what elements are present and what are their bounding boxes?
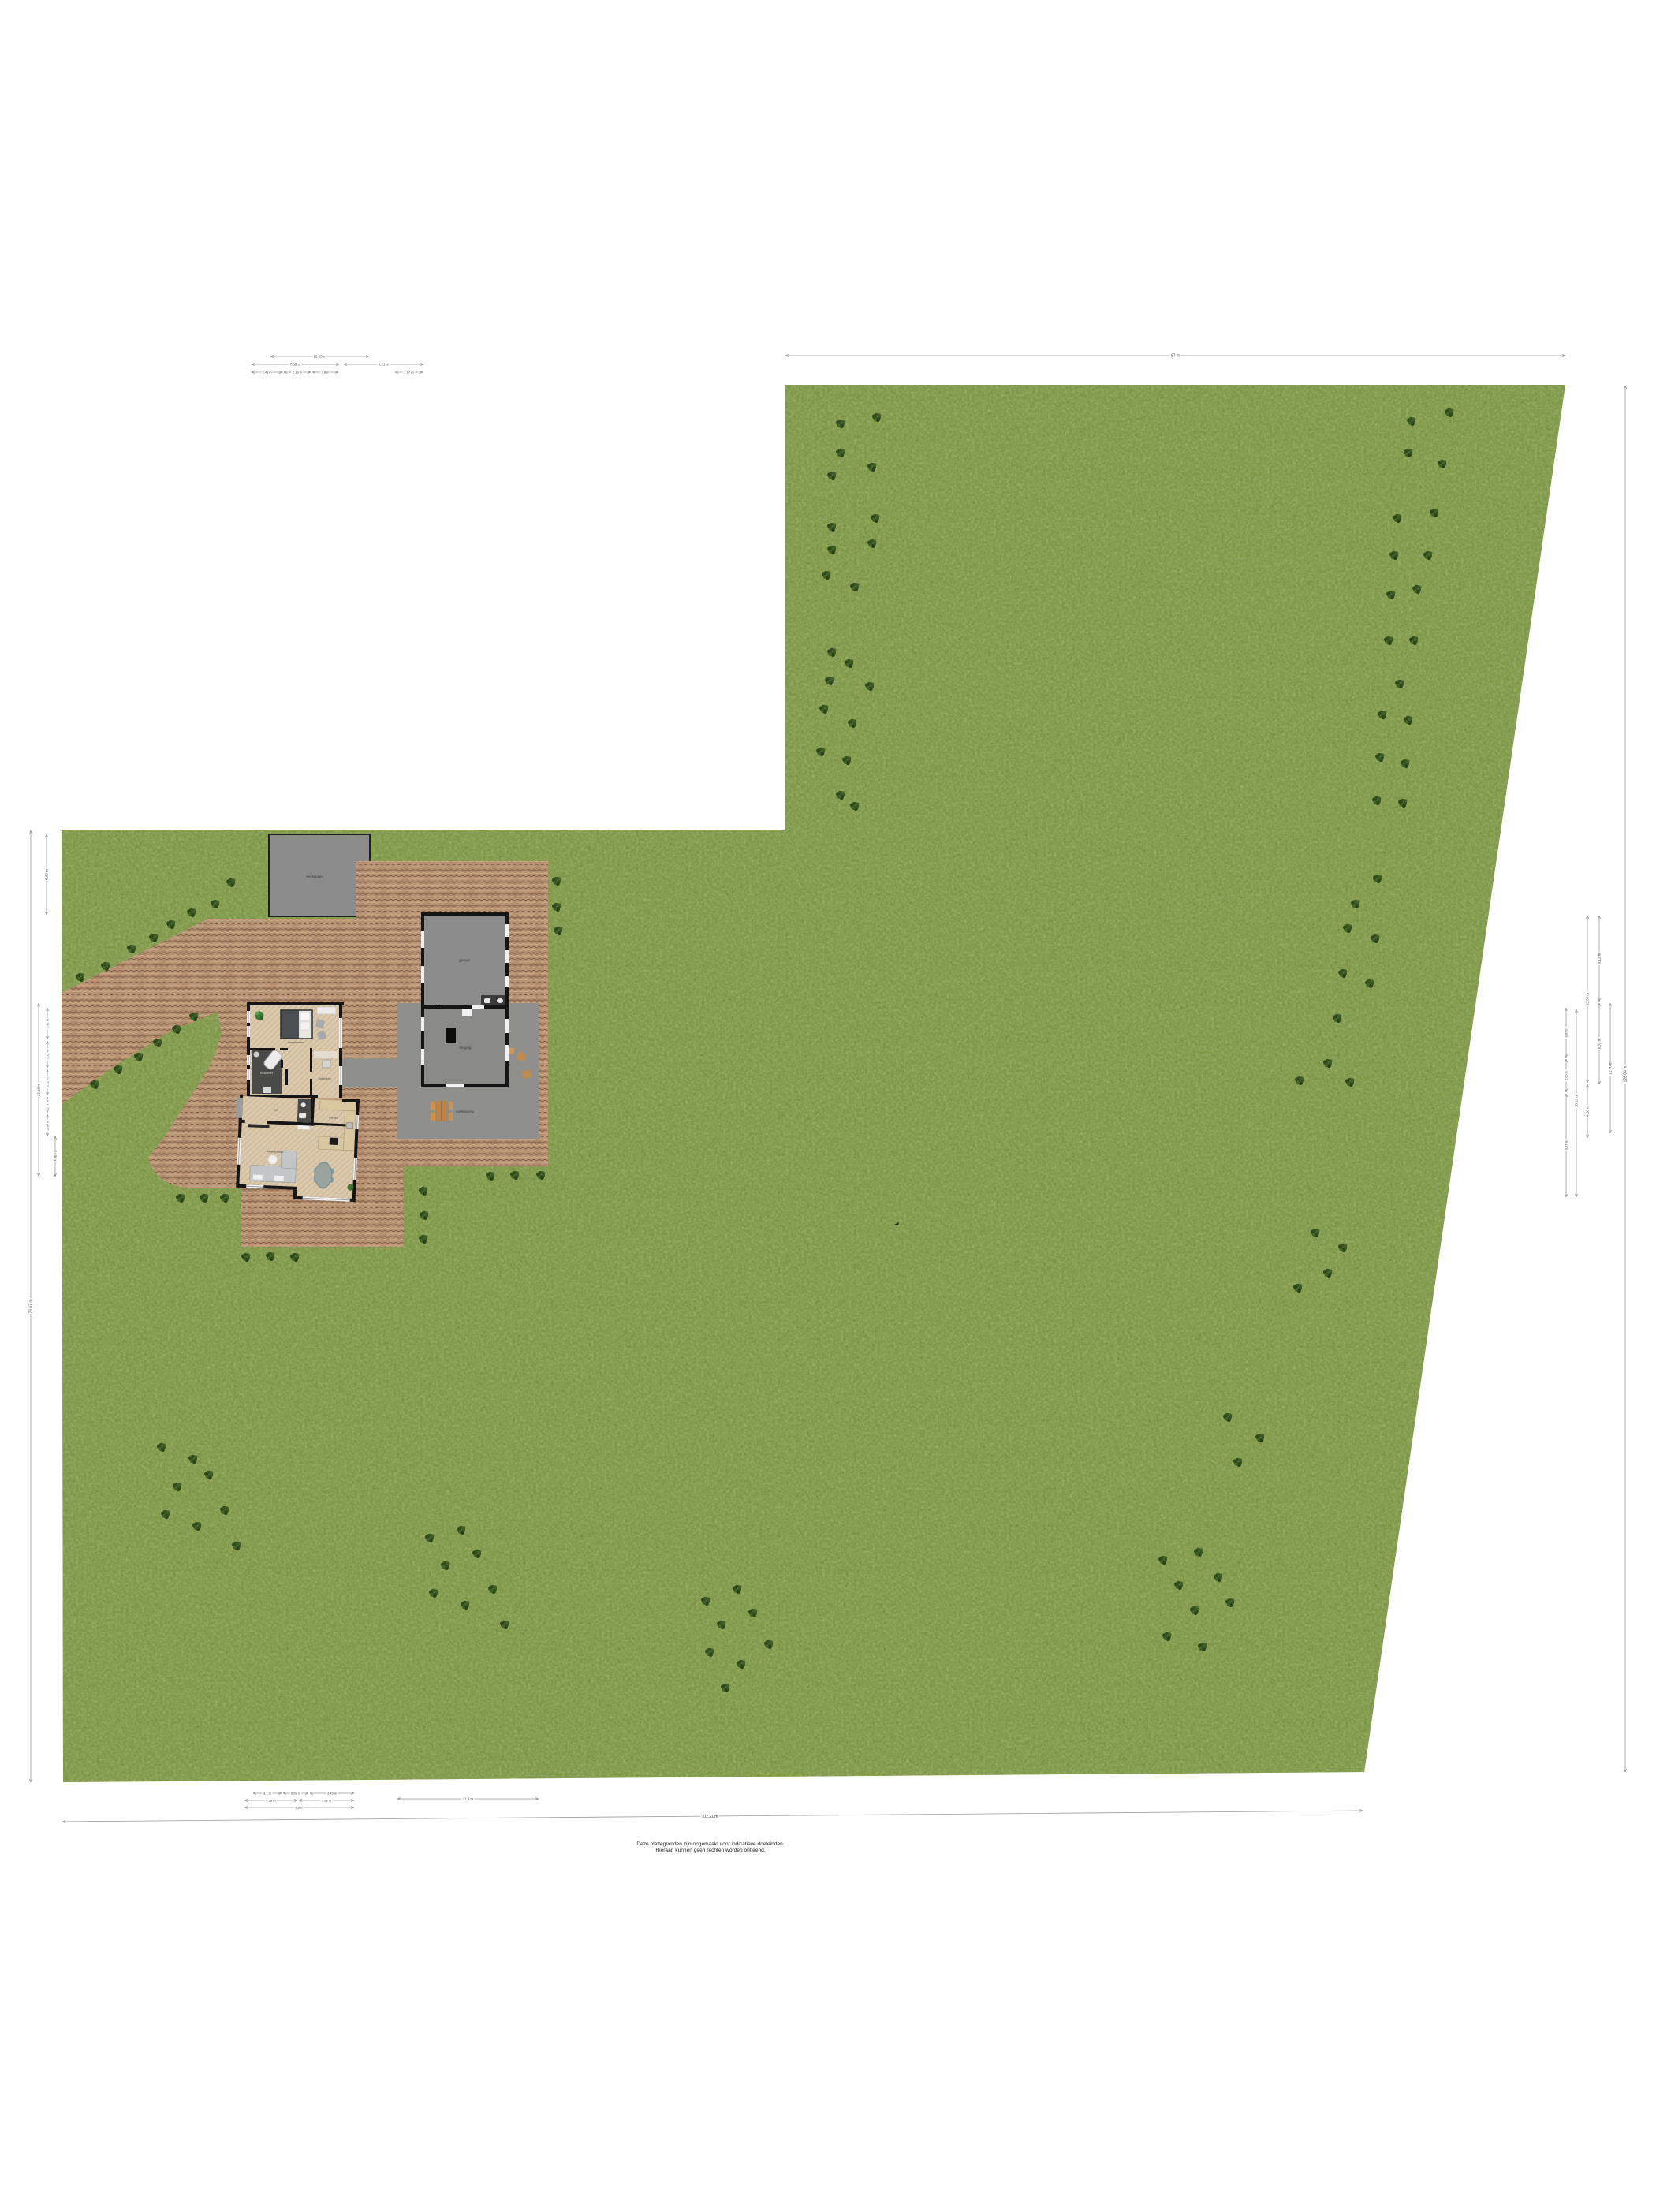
svg-text:1.98 m: 1.98 m (322, 1799, 332, 1803)
svg-text:8.82 m: 8.82 m (1598, 1038, 1602, 1049)
svg-text:2.92 m: 2.92 m (46, 1018, 50, 1028)
svg-text:8.8 m: 8.8 m (295, 1806, 304, 1810)
svg-text:87 m: 87 m (1171, 354, 1180, 359)
svg-text:2.45 m: 2.45 m (262, 371, 272, 375)
svg-text:2.6 m: 2.6 m (321, 371, 330, 375)
svg-text:hal: hal (274, 1109, 278, 1112)
svg-text:13.10 m: 13.10 m (37, 1084, 41, 1097)
svg-text:4.36 m: 4.36 m (266, 1799, 276, 1803)
svg-text:2.60 m: 2.60 m (1565, 1070, 1568, 1080)
svg-text:3.1 m: 3.1 m (263, 1792, 272, 1796)
svg-text:13.56 m: 13.56 m (1586, 993, 1590, 1006)
svg-text:garage: garage (459, 958, 471, 962)
svg-text:1.97 m: 1.97 m (404, 371, 414, 375)
svg-text:3.43 m: 3.43 m (327, 1792, 338, 1796)
svg-text:4.48 m: 4.48 m (54, 1151, 58, 1162)
svg-text:6.92 m: 6.92 m (45, 869, 49, 880)
svg-text:slaapkamer: slaapkamer (288, 1040, 304, 1044)
svg-text:2.19 m: 2.19 m (293, 371, 303, 375)
svg-text:1.17 m: 1.17 m (46, 1099, 50, 1110)
svg-text:werkplaats: werkplaats (306, 875, 323, 878)
svg-text:4.38 m: 4.38 m (1586, 1106, 1590, 1117)
svg-text:15.05 m: 15.05 m (313, 355, 326, 359)
svg-text:3.21 m: 3.21 m (46, 1077, 50, 1087)
svg-text:10.13 m: 10.13 m (1575, 1095, 1579, 1108)
svg-text:bijkeuken: bijkeuken (319, 1077, 330, 1080)
svg-text:9.17 m: 9.17 m (1565, 1140, 1568, 1150)
svg-text:3.97 m: 3.97 m (1565, 1028, 1568, 1038)
svg-text:badkamer: badkamer (260, 1072, 274, 1075)
svg-text:0.59 m: 0.59 m (291, 1792, 301, 1796)
svg-text:Deze plattegronden zijn opgema: Deze plattegronden zijn opgemaakt voor i… (636, 1841, 784, 1847)
svg-text:Hieraan kunnen geen rechten wo: Hieraan kunnen geen rechten worden ontle… (655, 1848, 765, 1853)
svg-text:7.65 m: 7.65 m (290, 363, 301, 367)
svg-text:11.6 m: 11.6 m (463, 1797, 474, 1801)
svg-text:3.11 m: 3.11 m (46, 1049, 50, 1059)
svg-text:berging: berging (459, 1046, 472, 1050)
svg-text:overkapping: overkapping (456, 1110, 474, 1113)
svg-text:128.04 m: 128.04 m (1624, 1066, 1628, 1083)
svg-text:2.10 m: 2.10 m (46, 1120, 50, 1130)
svg-text:12.70 m: 12.70 m (1609, 1061, 1613, 1075)
svg-text:76.67 m: 76.67 m (29, 1299, 34, 1313)
svg-text:keuken: keuken (329, 1117, 338, 1120)
svg-text:6.21 m: 6.21 m (379, 363, 390, 367)
svg-text:woonkamer: woonkamer (267, 1149, 285, 1154)
svg-text:9.12 m: 9.12 m (1598, 953, 1602, 964)
svg-text:102.21 m: 102.21 m (702, 1815, 718, 1819)
